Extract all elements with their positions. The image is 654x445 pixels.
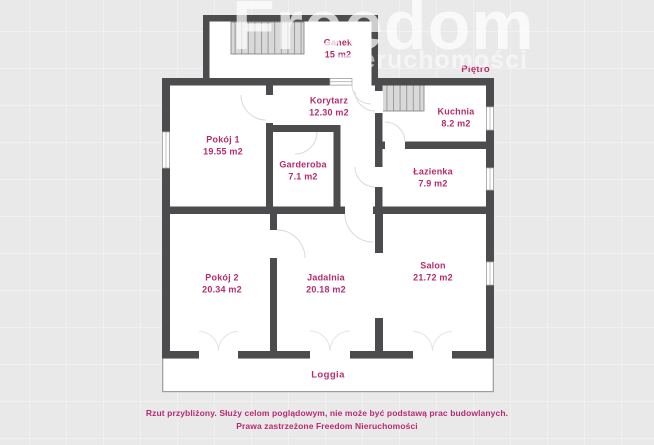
disclaimer-line1: Rzut przybliżony. Służy celom poglądowym… bbox=[0, 407, 654, 420]
loggia-label: Loggia bbox=[311, 370, 345, 381]
disclaimer-text: Rzut przybliżony. Służy celom poglądowym… bbox=[0, 407, 654, 433]
floorplan-page: Ganek15 m2Korytarz12.30 m2Kuchnia8.2 m2P… bbox=[0, 0, 654, 445]
disclaimer-line2: Prawa zastrzeżone Freedom Nieruchomości bbox=[0, 420, 654, 433]
interior-stairs-icon bbox=[381, 85, 424, 111]
floor-level-label: Piętro bbox=[414, 64, 490, 75]
porch-stairs-icon bbox=[231, 22, 304, 54]
